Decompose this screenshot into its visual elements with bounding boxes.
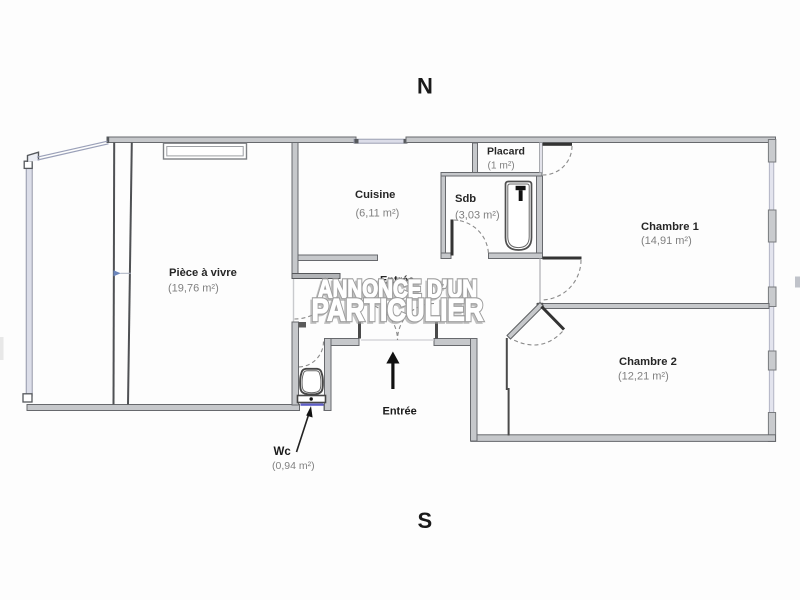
svg-text:Pièce à vivre: Pièce à vivre <box>169 267 237 279</box>
svg-text:Entrée: Entrée <box>383 406 417 418</box>
svg-text:Chambre 2: Chambre 2 <box>619 356 677 368</box>
svg-text:(6,11 m²): (6,11 m²) <box>356 208 400 220</box>
svg-text:(3,03 m²): (3,03 m²) <box>455 210 500 222</box>
svg-text:Chambre 1: Chambre 1 <box>641 221 699 233</box>
svg-text:(12,21 m²): (12,21 m²) <box>618 371 669 383</box>
svg-text:(19,76 m²): (19,76 m²) <box>168 283 219 295</box>
svg-text:Sdb: Sdb <box>455 193 476 205</box>
svg-text:N: N <box>417 74 433 99</box>
svg-text:S: S <box>418 508 433 533</box>
svg-text:(0,94 m²): (0,94 m²) <box>272 460 315 472</box>
svg-text:(14,91 m²): (14,91 m²) <box>641 235 692 247</box>
svg-text:PARTICULIER: PARTICULIER <box>312 293 484 328</box>
svg-text:Placard: Placard <box>487 146 525 158</box>
svg-text:(1 m²): (1 m²) <box>488 161 515 172</box>
svg-text:Wc: Wc <box>274 446 292 458</box>
svg-text:Cuisine: Cuisine <box>355 189 395 201</box>
